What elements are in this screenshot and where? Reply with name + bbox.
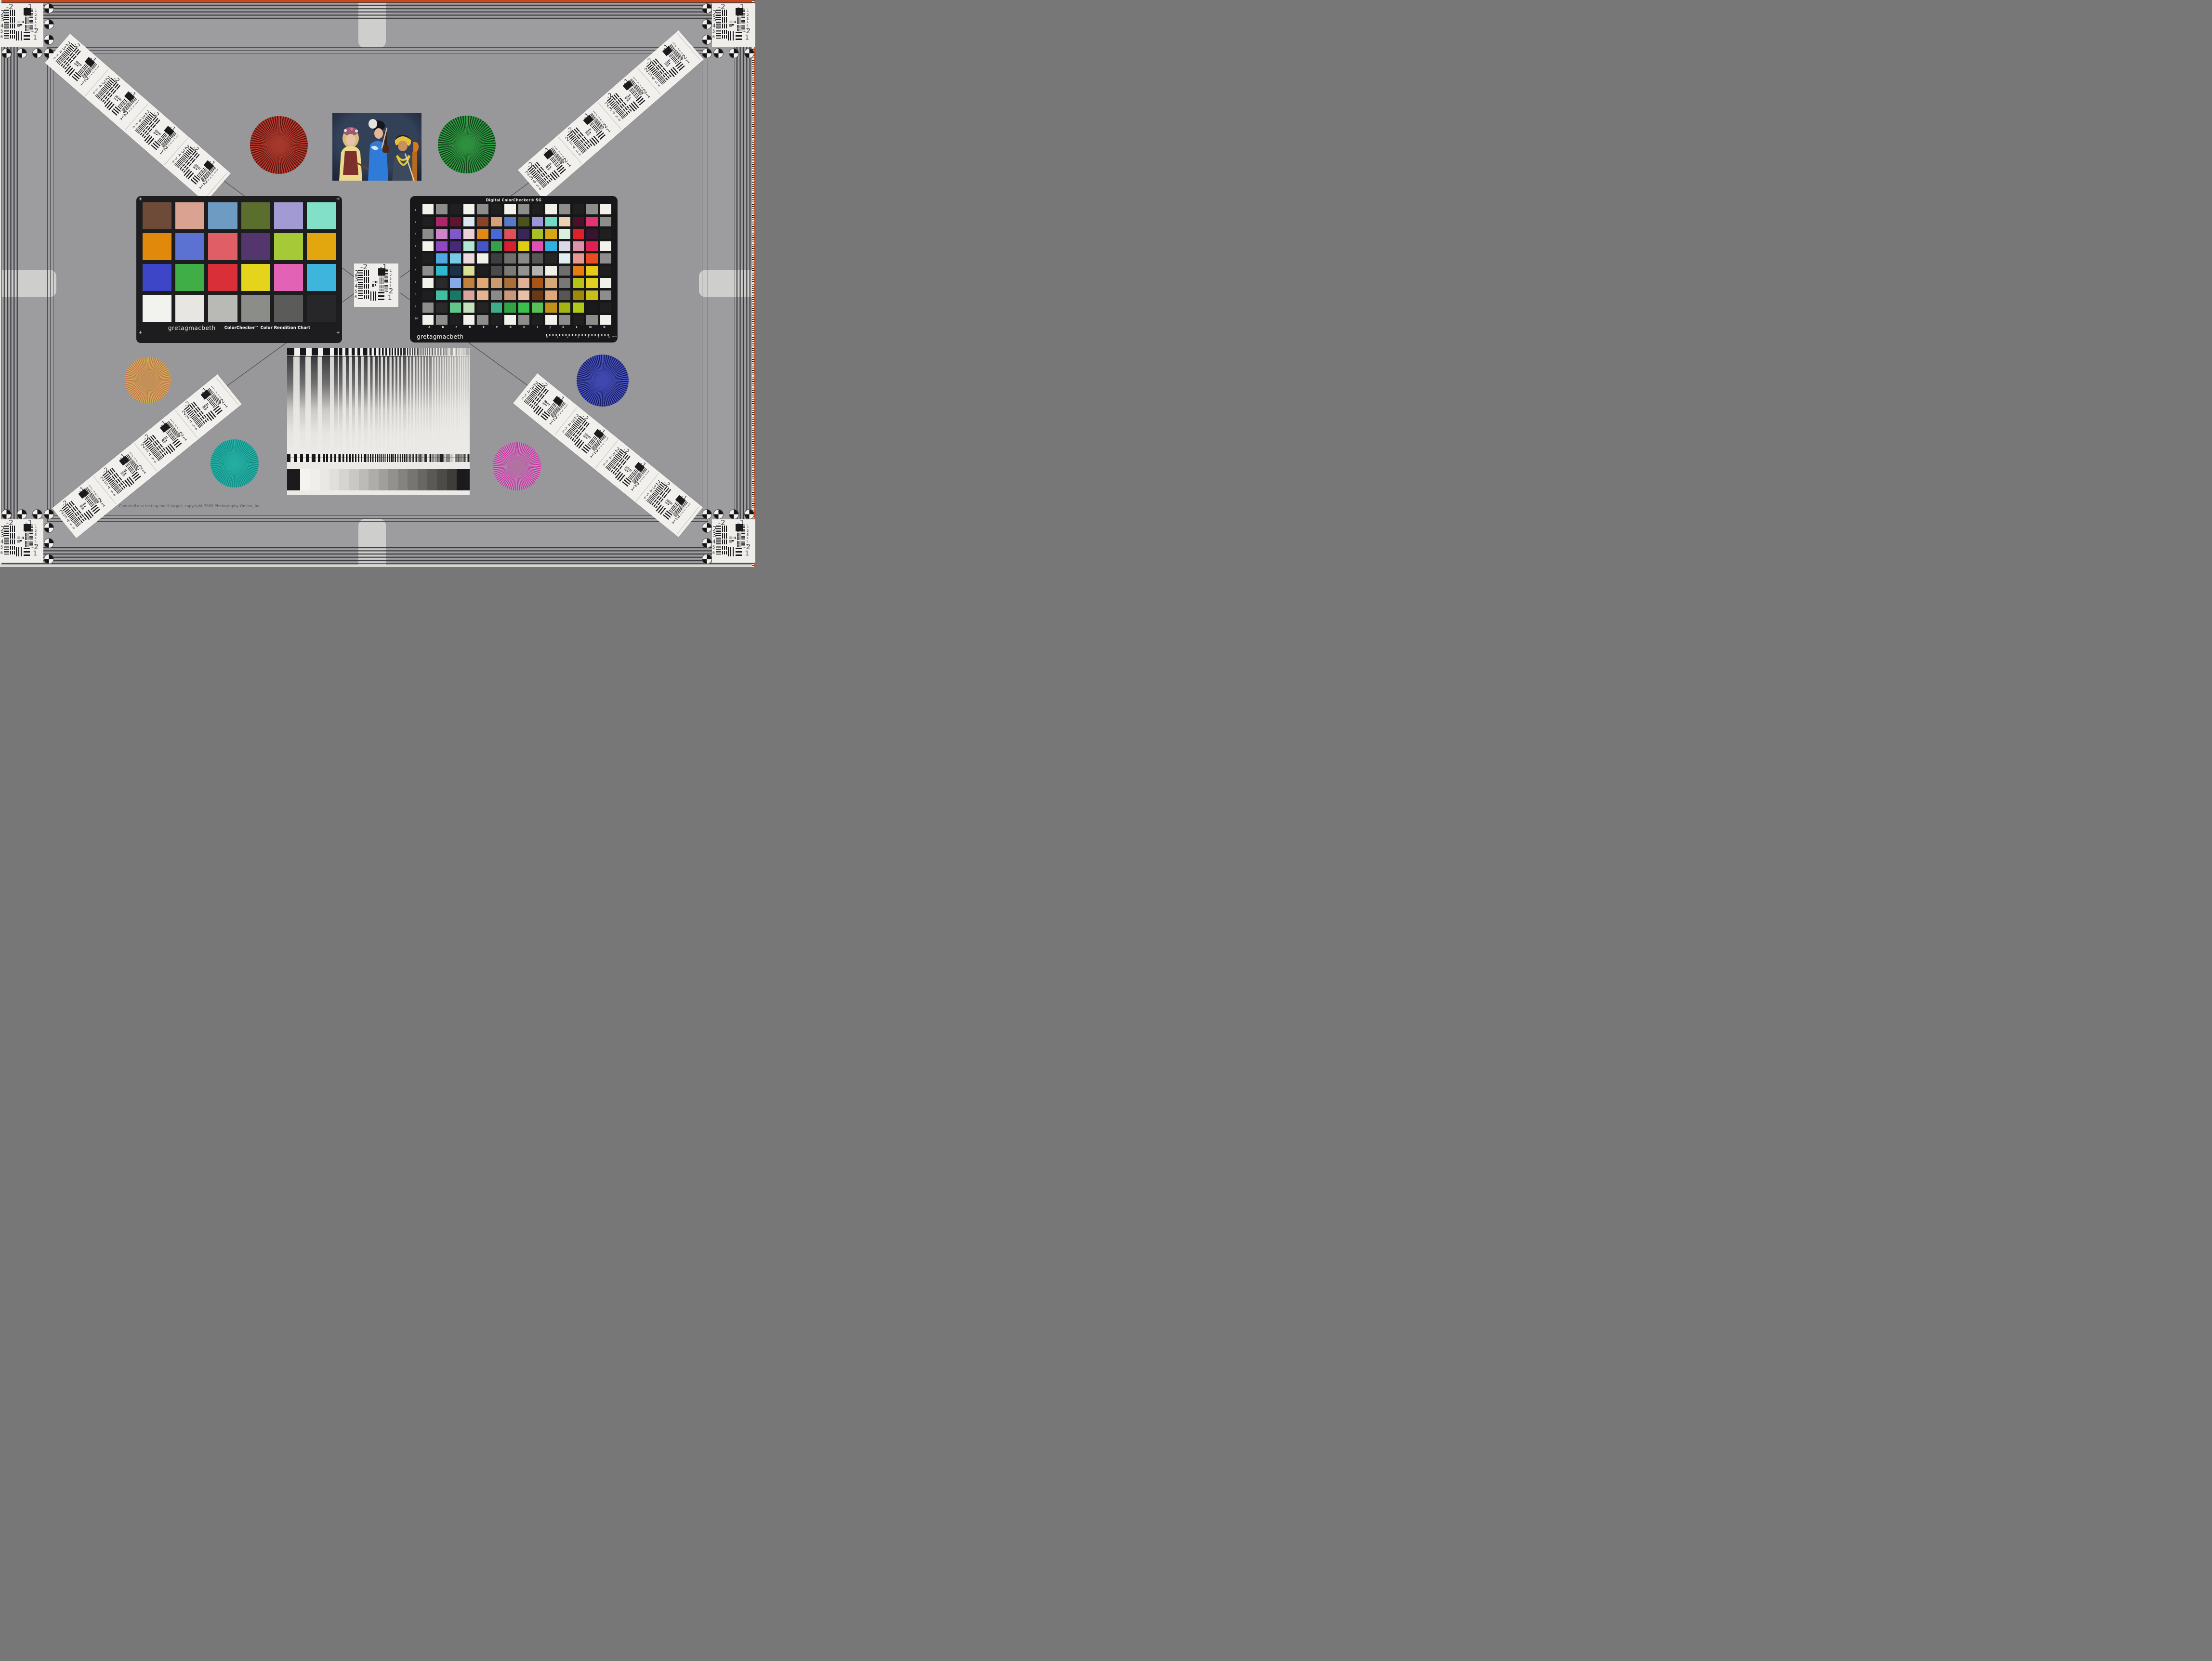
registration-circle [714,510,723,519]
sg-color-patch [559,278,570,288]
color-patch [307,295,336,322]
usaf-bars [123,469,127,472]
sg-color-patch [436,217,447,227]
usaf-bars [741,529,745,532]
usaf-bars [4,24,9,28]
sg-color-patch [586,278,597,288]
usaf-number: 6 [92,91,95,95]
frequency-sweep-chart [287,348,470,495]
usaf-bars [364,270,369,277]
usaf-bars [629,97,631,99]
sg-color-patch [504,217,515,227]
usaf-number: 1 [685,58,691,65]
sg-color-patch [573,217,584,227]
sg-color-patch [600,229,611,239]
registration-circle [17,510,26,519]
usaf-bars [716,540,721,544]
label: 9 [415,305,418,308]
sg-color-patch [532,217,543,227]
wedge-step [388,469,398,490]
sg-color-patch [586,217,597,227]
registration-circle [2,510,11,519]
usaf-number: 1 [79,80,85,87]
sg-color-patch [586,229,597,239]
wedge-step [349,469,359,490]
usaf-bars [741,21,745,24]
usaf-bars [17,21,20,23]
registration-circle [702,554,711,564]
sg-column-labels: ABCDEFGHIJKLMN [422,326,611,329]
usaf-number: 2 [35,13,37,16]
usaf-bars [10,10,15,16]
usaf-bars [741,13,745,16]
paper-edge-bottom [0,565,755,567]
usaf-number: 6 [355,295,357,299]
usaf-bars [547,402,551,406]
registration-circle [729,49,738,58]
usaf-bars [588,128,592,132]
usaf-bars [716,526,721,532]
label: 5 [415,257,418,260]
usaf-bars [729,537,732,539]
usaf-number: 5 [0,30,3,34]
usaf-bars [737,537,740,540]
sg-color-patch [422,315,434,325]
wedge-step [300,469,310,490]
sg-color-patch [491,266,502,276]
sg-color-patch [545,241,556,251]
sg-color-patch [573,241,584,251]
sg-patch-grid [422,204,611,325]
label: I [537,326,538,329]
usaf-bars [4,35,9,39]
sg-color-patch [477,229,488,239]
usaf-bars [20,540,22,541]
sg-color-patch [436,290,447,301]
sg-ruler-numbers: 0123456 [546,336,610,339]
sg-color-patch [545,266,556,276]
usaf-bars [4,10,9,16]
usaf-number: 4 [712,24,716,29]
sg-color-patch [518,303,529,313]
sg-color-patch [463,241,474,251]
usaf-bars [10,526,15,532]
label: B [442,326,444,329]
usaf-bars [156,133,158,135]
label: K [562,326,564,329]
color-patch [307,202,336,229]
usaf-bars [25,533,28,537]
usaf-bars [729,540,732,542]
usaf-bars [10,551,15,554]
usaf-bars [10,533,15,539]
usaf-bars [380,289,383,291]
color-patch [241,264,270,291]
usaf-number: 1 [645,93,651,99]
label: 0 [546,336,548,339]
usaf-bars [29,9,33,13]
sg-mm-ruler: 0123456 [546,334,610,339]
usaf-bars [29,21,33,24]
label: E [483,326,484,329]
sweep-divider-line-bottom [287,458,470,458]
usaf-bars [380,285,383,288]
paper-edge-left [0,0,1,567]
wedge-step [427,469,437,490]
usaf-bars [4,533,9,539]
sweep-slice [300,454,313,462]
usaf-bars [4,17,9,23]
usaf-bars [25,529,28,532]
sg-color-patch [532,204,543,214]
usaf-number: 1 [566,162,572,168]
usaf-bars [17,24,20,26]
label: H [523,326,525,329]
registration-circle [702,510,711,519]
usaf-bars [733,21,735,23]
color-patch [241,295,270,322]
usaf-number: 1 [745,551,749,557]
usaf-bars [4,540,9,544]
sweep-slice [431,454,444,462]
sg-color-patch [422,229,434,239]
registration-circle [702,20,711,29]
usaf-number: 1 [747,525,749,528]
sg-color-patch [491,290,502,301]
sg-color-patch [600,266,611,276]
usaf-bars [20,24,22,26]
sg-color-patch [545,217,556,227]
usaf-bars [25,28,28,31]
usaf-number: 1 [630,486,635,492]
sg-color-patch [545,253,556,264]
sg-color-patch [518,315,529,325]
color-patch [208,295,237,322]
sg-color-patch [518,204,529,214]
label: 4 [415,245,418,248]
sg-color-patch [422,278,434,288]
usaf-bars [25,9,28,13]
orange-edge-strip-right [754,0,756,567]
usaf-bars [716,546,721,550]
usaf-number: 1 [33,551,37,557]
usaf-bars [372,284,375,287]
sg-color-patch [532,303,543,313]
usaf-bars [29,13,33,16]
sg-color-patch [573,253,584,264]
sg-color-patch [491,278,502,288]
usaf-number: 6 [618,118,621,122]
sg-color-patch [477,253,488,264]
usaf-number: 3 [747,533,749,537]
registration-circle [702,539,711,548]
usaf-bars [729,21,732,23]
sg-color-patch [436,241,447,251]
sg-color-patch [436,229,447,239]
siemens-star-red [250,116,308,174]
usaf-bars [17,537,20,539]
sg-color-patch [545,290,556,301]
usaf-bars [722,35,727,39]
sg-color-patch [545,315,556,325]
usaf-bars [29,533,33,537]
sg-color-patch [450,278,461,288]
siemens-star-gold [125,357,171,403]
wedge-step [329,469,339,490]
usaf-number: 6 [72,526,75,530]
label: L [576,326,578,329]
usaf-number: 4 [35,21,37,24]
usaf-bars [375,284,376,286]
usaf-bars [17,540,20,542]
usaf-bars [588,435,592,438]
sg-color-patch [559,253,570,264]
sg-color-patch [504,229,515,239]
wedge-step [359,469,369,490]
usaf-target-bottom-right: -2-123456123456-21 [712,519,755,563]
registration-circle [33,510,42,519]
usaf-bars [205,403,209,406]
sg-color-patch [477,315,488,325]
sg-color-patch [436,315,447,325]
registration-circle [44,510,53,519]
usaf-bars [380,277,383,281]
sg-color-patch [491,315,502,325]
crop-mark: + [138,331,142,334]
usaf-bars [4,30,9,34]
sg-color-patch [559,290,570,301]
usaf-bars [741,537,745,540]
sg-color-patch [491,204,502,214]
sg-color-patch [504,303,515,313]
sg-color-patch [600,278,611,288]
usaf-bars [737,533,740,537]
usaf-bars [722,30,727,34]
label: 3 [578,336,579,339]
copyright-text: Camera/Lens testing multi-target, copyri… [119,504,262,508]
usaf-bars [722,526,727,532]
sg-color-patch [491,253,502,264]
sg-color-patch [586,241,597,251]
sg-color-patch [450,241,461,251]
sg-color-patch [463,229,474,239]
usaf-bars [668,503,670,505]
usaf-bars [82,502,86,505]
wedge-step [408,469,417,490]
sg-color-patch [532,290,543,301]
label: 1 [557,336,558,339]
sg-color-patch [545,229,556,239]
color-patch [241,233,270,260]
usaf-bars [16,547,22,557]
registration-circle [702,35,711,44]
sg-color-patch [504,266,515,276]
usaf-bars [669,63,671,65]
registration-circle [17,49,26,58]
sweep-slice [339,454,352,462]
sg-color-patch [422,204,434,214]
usaf-bars [25,541,28,544]
usaf-bars [722,24,727,28]
wedge-end-black [457,469,470,490]
usaf-bars [84,505,86,507]
wedge-step [320,469,329,490]
sweep-slice [444,454,457,462]
sweep-slice [287,454,300,462]
sg-color-patch [422,290,434,301]
wedge-step [339,469,349,490]
usaf-bars [384,281,388,284]
usaf-bars [736,32,742,40]
usaf-number: 1 [100,502,106,508]
sg-ruler-unit: mm [612,336,617,338]
sg-color-patch [504,241,515,251]
usaf-bars [10,17,15,23]
usaf-number: 6 [0,35,3,39]
colorchecker-24-grid [143,202,336,322]
sg-color-patch [532,315,543,325]
sg-color-patch [518,217,529,227]
sg-color-patch [436,278,447,288]
usaf-bars [716,30,721,34]
sweep-slice [418,454,431,462]
sweep-right-fade [287,348,470,463]
registration-circle [729,510,738,519]
siemens-star-blue [577,355,629,407]
usaf-number: 5 [0,546,3,550]
usaf-bars [737,544,740,547]
sg-color-patch [450,229,461,239]
colorchecker-24-chart: + + + + gretagmacbeth ColorChecker™ Colo… [136,196,342,343]
usaf-bars [29,17,33,21]
sg-color-patch [463,266,474,276]
sg-color-patch [477,266,488,276]
usaf-bars [384,277,388,281]
sg-color-patch [463,315,474,325]
sg-color-patch [532,253,543,264]
usaf-bars [548,162,552,166]
usaf-bars [729,24,732,26]
usaf-bars [25,25,28,28]
sg-color-patch [463,278,474,288]
usaf-bars [667,59,671,63]
usaf-target-top-right: -2-123456123456-21 [712,3,755,47]
crop-mark: + [138,198,142,201]
label: 10 [415,317,418,320]
usaf-number: 1 [141,469,147,475]
usaf-number: 3 [390,277,392,281]
usaf-number: 5 [355,290,357,294]
sg-row-labels: 12345678910 [415,204,418,325]
usaf-bars [24,32,30,40]
usaf-bars [722,551,727,554]
sg-color-patch [491,241,502,251]
sg-color-patch [559,204,570,214]
usaf-bars [741,533,745,537]
usaf-bars [29,525,33,528]
usaf-bars [197,166,201,170]
sg-color-patch [518,229,529,239]
usaf-number: 1 [745,35,749,41]
sg-color-patch [600,303,611,313]
sg-brand: gretagmacbeth [417,333,464,340]
usaf-number: 6 [562,430,565,434]
wedge-step [437,469,447,490]
crop-mark: + [336,331,340,334]
usaf-number: 4 [390,281,392,284]
usaf-bars [364,277,369,283]
sg-color-patch [504,278,515,288]
usaf-number: 3 [35,533,37,537]
label: F [496,326,498,329]
usaf-bars [733,537,735,539]
usaf-number: 6 [154,460,157,464]
usaf-bars [628,468,632,472]
usaf-bars [10,540,15,544]
usaf-bars [737,525,740,528]
sg-color-patch [422,266,434,276]
sg-color-patch [600,241,611,251]
sg-color-patch [463,217,474,227]
usaf-bars [16,31,22,41]
usaf-bars [737,21,740,24]
usaf-bars [380,273,383,277]
usaf-number: 6 [657,84,660,88]
sg-color-patch [559,241,570,251]
registration-circle [44,20,53,29]
label: N [604,326,606,329]
wedge-step [447,469,457,490]
registration-circle [44,35,53,44]
usaf-number: 6 [521,397,524,401]
color-patch [274,233,303,260]
usaf-number: 4 [35,537,37,540]
registration-circle [44,554,53,564]
sg-color-patch [504,315,515,325]
usaf-bars [737,17,740,21]
sg-color-patch [545,303,556,313]
sg-color-patch [586,303,597,313]
sg-color-patch [600,204,611,214]
usaf-bars [364,284,369,289]
color-patch [208,233,237,260]
color-patch [175,295,204,322]
usaf-bars [158,132,161,135]
usaf-number: 4 [712,540,716,545]
usaf-target-bottom-left: -2-123456123456-21 [0,519,43,563]
sg-color-patch [477,303,488,313]
sg-color-patch [477,241,488,251]
sweep-slice [352,454,365,462]
sg-color-patch [573,229,584,239]
usaf-bars [4,526,9,532]
sg-color-patch [573,204,584,214]
usaf-bars [378,292,385,300]
registration-circle [714,49,723,58]
sg-color-patch [504,253,515,264]
usaf-number: 1 [747,9,749,13]
usaf-bars [586,437,588,439]
usaf-bars [364,290,369,294]
label: 3 [415,233,418,236]
usaf-number: 6 [602,463,606,467]
sg-color-patch [463,253,474,264]
sg-color-patch [573,278,584,288]
usaf-bars [545,404,547,406]
usaf-target-top-left: -2-123456123456-21 [0,3,43,47]
sg-color-patch [450,315,461,325]
usaf-bars [4,551,9,554]
